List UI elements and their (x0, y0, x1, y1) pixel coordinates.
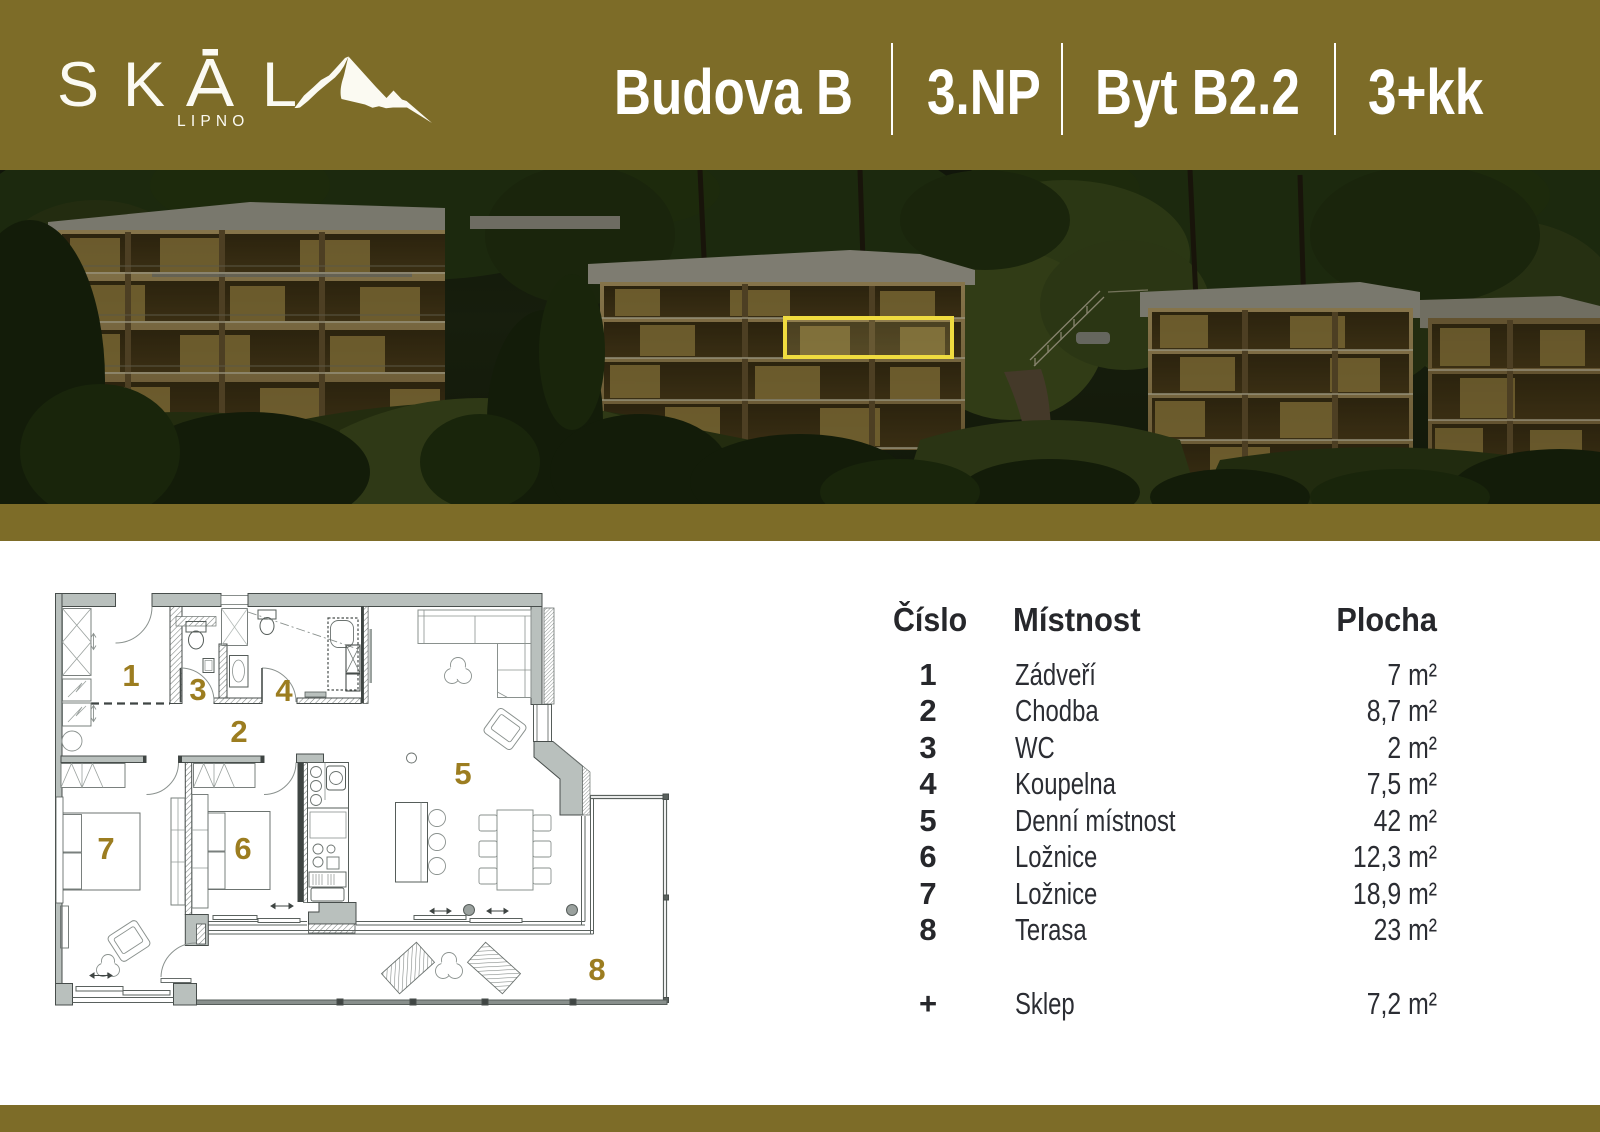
svg-text:2: 2 (230, 714, 247, 749)
svg-text:LIPNO: LIPNO (177, 113, 250, 130)
svg-text:6: 6 (234, 831, 251, 866)
svg-text:4: 4 (275, 673, 293, 708)
svg-text:1: 1 (122, 658, 139, 693)
svg-text:5: 5 (454, 756, 471, 791)
svg-text:3: 3 (189, 672, 206, 707)
svg-text:8: 8 (588, 952, 605, 987)
svg-text:L: L (262, 50, 297, 120)
svg-text:K: K (123, 50, 165, 120)
svg-text:7: 7 (97, 831, 114, 866)
svg-text:S: S (57, 50, 99, 120)
